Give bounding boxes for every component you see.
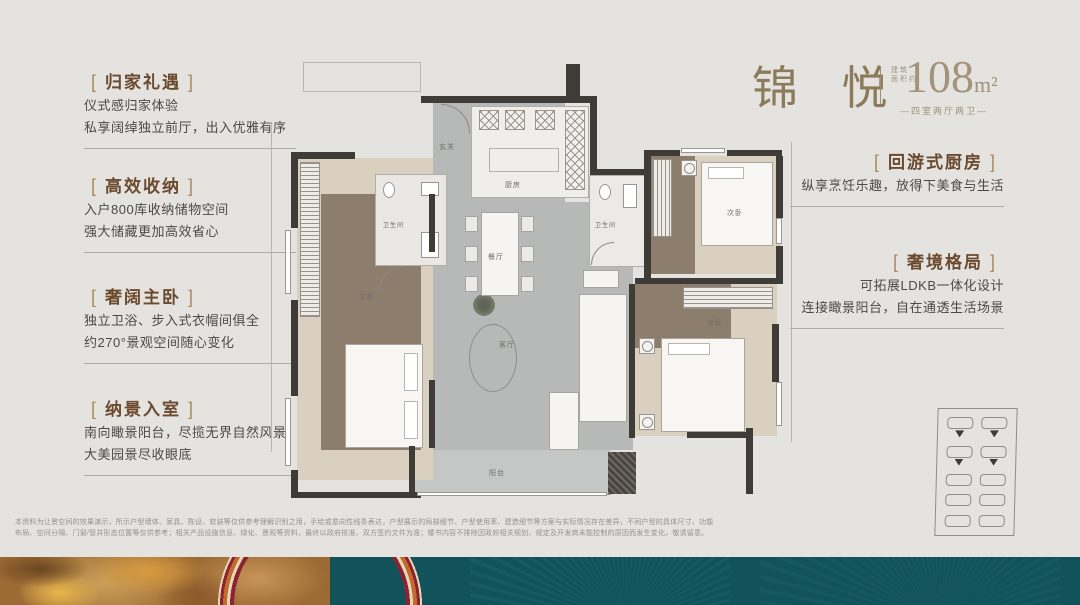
bracket-left: [ [84, 72, 105, 92]
toilet-icon [599, 184, 611, 200]
room-label-living: 客厅 [499, 340, 515, 350]
keyplan-row [936, 494, 1014, 506]
building-key-plan [934, 408, 1017, 536]
room-label-entry: 玄关 [439, 142, 455, 152]
brochure-page: [归家礼遇] 仪式感归家体验 私享阔绰独立前厅，出入优雅有序 [高效收纳] 入户… [0, 0, 1080, 605]
callout-line: 可拓展LDKB一体化设计 [790, 276, 1004, 295]
wall-segment [727, 150, 782, 156]
keyplan-unit-highlighted [980, 446, 1007, 466]
rug [469, 324, 517, 392]
wall-segment [644, 150, 680, 156]
unit-marker [955, 430, 964, 437]
callout-line: 连接瞰景阳台，自在通透生活场景 [790, 298, 1004, 317]
room-configuration: —四室两厅两卫— [886, 104, 1002, 117]
bracket-left: [ [886, 252, 907, 272]
wardrobe-icon [683, 287, 773, 309]
walkin-closet-icon [300, 162, 320, 317]
survey-line [271, 122, 272, 452]
keyplan-unit-highlighted [947, 417, 974, 437]
callout-title: [纳景入室] [84, 395, 296, 420]
callout-line: 独立卫浴、步入式衣帽间俱全 [84, 311, 296, 330]
disclaimer-line: 布局、空间分隔、门窗/管井形态位置等仅供参考；相关产品设施信息、绿化、景观等资料… [15, 529, 850, 540]
wall-segment [596, 169, 648, 175]
bedroom2-bed [701, 162, 773, 246]
bracket-left: [ [867, 152, 888, 172]
callout-line: 仪式感归家体验 [84, 96, 296, 115]
ac-unit-icon [681, 160, 697, 176]
keyplan-unit [979, 494, 1005, 506]
master-bed [345, 344, 423, 448]
callout-line: 入户800库收纳储物空间 [84, 200, 296, 219]
planter-icon [608, 452, 636, 494]
wall-segment [421, 96, 573, 103]
bracket-left: [ [84, 176, 105, 196]
window [776, 382, 782, 426]
sink-icon [505, 110, 525, 130]
wall-segment [429, 380, 435, 448]
keyplan-row [937, 474, 1015, 486]
wall-segment [776, 156, 783, 218]
disclaimer-line: 本资料为让景空间的效果演示，所示户型墙体、家具、陈设、软装等仅供参考理解识别之用… [15, 518, 850, 529]
callout-line: 大美园景尽收眼底 [84, 445, 296, 464]
pillow-icon [404, 353, 418, 391]
room-label-dining: 餐厅 [488, 252, 504, 262]
chair-icon [465, 246, 478, 262]
toilet-icon [383, 182, 395, 198]
keyplan-unit-highlighted [981, 417, 1008, 437]
chaise [549, 392, 579, 450]
vertical-divider [880, 66, 881, 104]
window [285, 398, 291, 466]
callout-title: [奢阔主卧] [84, 283, 296, 308]
keyplan-row [936, 515, 1014, 527]
callout-kitchen: [回游式厨房] 纵享烹饪乐趣，放得下美食与生活 [790, 148, 1004, 207]
wall-segment [291, 152, 298, 228]
room-label-master: 主卧 [359, 292, 375, 302]
divider [84, 148, 296, 149]
keyplan-unit [979, 515, 1005, 527]
keyplan-unit [944, 515, 970, 527]
legal-disclaimer: 本资料为让景空间的效果演示，所示户型墙体、家具、陈设、软装等仅供参考理解识别之用… [15, 518, 850, 539]
bracket-left: [ [84, 287, 105, 307]
window [285, 230, 291, 294]
divider [84, 252, 296, 253]
room-label-kitchen: 厨房 [505, 180, 521, 190]
chair-icon [521, 216, 534, 232]
callout-title: [回游式厨房] [790, 148, 1004, 173]
room-label-bathroom: 卫生间 [383, 220, 404, 229]
pillow-icon [404, 401, 418, 439]
stove-icon [479, 110, 499, 130]
leaf-fan-motif [470, 557, 730, 605]
keyplan-unit-highlighted [946, 446, 973, 466]
ac-unit-icon [639, 338, 655, 354]
callout-storage: [高效收纳] 入户800库收纳储物空间 强大储藏更加高效省心 [84, 172, 296, 253]
keyplan-row [937, 446, 1016, 466]
wall-segment [629, 284, 635, 438]
bracket-right: ] [181, 176, 202, 196]
bracket-right: ] [983, 152, 1004, 172]
unit-marker [989, 459, 998, 466]
room-label-bedroom2: 次卧 [727, 208, 743, 218]
survey-line [791, 142, 792, 442]
callout-view: [纳景入室] 南向瞰景阳台，尽揽无界自然风景 大美园景尽收眼底 [84, 395, 296, 476]
divider [790, 328, 1004, 329]
wall-segment [772, 324, 779, 382]
lobby-outline [303, 62, 421, 92]
wall-segment [295, 492, 421, 498]
pillow-icon [668, 343, 710, 355]
callout-line: 私享阔绰独立前厅，出入优雅有序 [84, 118, 296, 137]
keyplan-unit [980, 474, 1006, 486]
unit-marker [954, 459, 963, 466]
keyplan-row [938, 417, 1017, 437]
wall-segment [291, 300, 298, 396]
callout-title: [归家礼遇] [84, 68, 296, 93]
plant-icon [473, 294, 495, 316]
bedroom3-bed [661, 338, 745, 432]
chair-icon [465, 276, 478, 292]
callout-line: 纵享烹饪乐趣，放得下美食与生活 [790, 176, 1004, 195]
bracket-left: [ [84, 399, 105, 419]
callout-homecoming: [归家礼遇] 仪式感归家体验 私享阔绰独立前厅，出入优雅有序 [84, 68, 296, 149]
striped-arc-motif [210, 557, 430, 605]
balcony-floor [415, 450, 611, 495]
area-unit: m² [974, 72, 998, 97]
wall-segment [573, 96, 597, 103]
bracket-right: ] [983, 252, 1004, 272]
window [417, 492, 607, 496]
keyplan-unit [945, 474, 971, 486]
wall-segment [644, 150, 651, 280]
wall-segment [429, 194, 435, 252]
divider [84, 475, 296, 476]
callout-title: [高效收纳] [84, 172, 296, 197]
chair-icon [521, 276, 534, 292]
sofa [579, 294, 627, 422]
callout-title: [奢境格局] [790, 248, 1004, 273]
unit-marker [990, 430, 999, 437]
pillow-icon [708, 167, 744, 179]
callout-line: 约270°景观空间随心变化 [84, 333, 296, 352]
wall-segment [409, 446, 415, 494]
callout-line: 强大储藏更加高效省心 [84, 222, 296, 241]
kitchen-island [489, 148, 559, 172]
bracket-right: ] [181, 287, 202, 307]
fridge-icon [565, 110, 585, 190]
bracket-right: ] [181, 399, 202, 419]
room-label-bedroom3: 次卧 [707, 318, 723, 328]
room-label-bathroom2: 卫生间 [595, 220, 616, 229]
chair-icon [465, 216, 478, 232]
floor-plan: 玄关 厨房 餐厅 客厅 阳台 主卧 卫生间 次卧 次卧 卫生间 [283, 62, 803, 514]
window [681, 148, 725, 153]
ac-unit-icon [639, 414, 655, 430]
window [776, 218, 782, 244]
chair-icon [521, 246, 534, 262]
callout-master-bedroom: [奢阔主卧] 独立卫浴、步入式衣帽间俱全 约270°景观空间随心变化 [84, 283, 296, 364]
room-label-balcony: 阳台 [489, 468, 505, 478]
callout-layout: [奢境格局] 可拓展LDKB一体化设计 连接瞰景阳台，自在通透生活场景 [790, 248, 1004, 329]
wall-segment [291, 152, 355, 159]
counter-icon [535, 110, 555, 130]
wall-segment [687, 432, 749, 438]
basin-icon [623, 184, 637, 208]
side-table [583, 270, 619, 288]
bracket-right: ] [181, 72, 202, 92]
bottom-artwork [0, 557, 1080, 605]
wardrobe-icon [652, 159, 672, 237]
area-value: 108m² [905, 50, 998, 103]
divider [790, 206, 1004, 207]
wall-segment [635, 278, 782, 284]
wall-segment [590, 103, 597, 175]
leaf-fan-motif [760, 557, 1060, 605]
keyplan-unit [945, 494, 971, 506]
callout-line: 南向瞰景阳台，尽揽无界自然风景 [84, 423, 296, 442]
divider [84, 363, 296, 364]
